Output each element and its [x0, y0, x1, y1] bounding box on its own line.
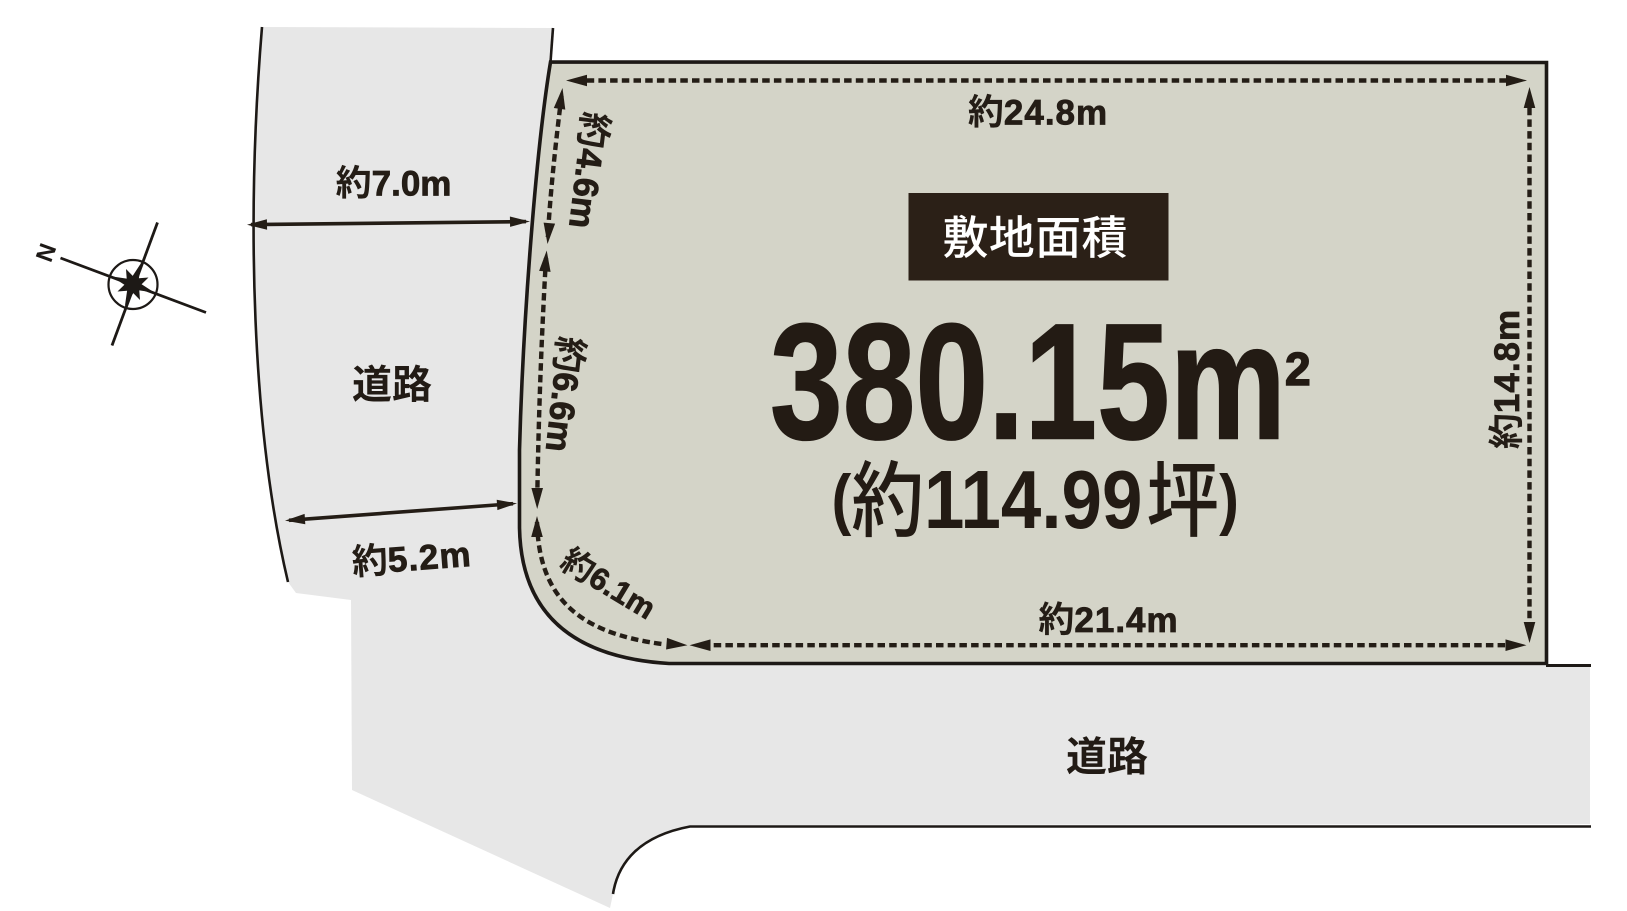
svg-text:(: ( — [832, 460, 853, 537]
svg-text:14.8m: 14.8m — [1488, 309, 1527, 413]
svg-text:380.15m: 380.15m — [770, 290, 1286, 474]
svg-text:5.2m: 5.2m — [386, 535, 472, 580]
svg-text:): ) — [1219, 460, 1239, 537]
svg-text:24.8m: 24.8m — [1004, 93, 1108, 132]
svg-text:21.4m: 21.4m — [1074, 601, 1178, 640]
svg-text:114.99: 114.99 — [924, 452, 1142, 546]
svg-text:7.0m: 7.0m — [372, 164, 452, 203]
svg-text:2: 2 — [1285, 343, 1311, 395]
